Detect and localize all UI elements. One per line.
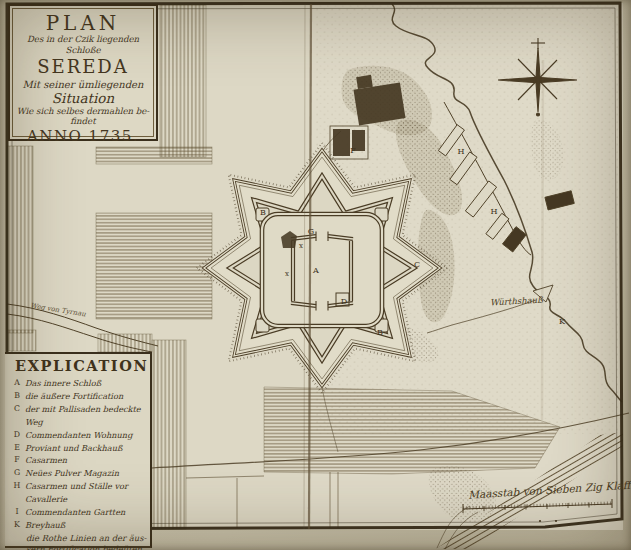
map-sheet: PLAN Des in der Czik liegenden Schloße S… [0, 0, 631, 550]
legend-note-line: die Rothe Linien an der äus- [26, 533, 147, 544]
legend-box: EXPLICATION ADas innere Schloß Bdie äuße… [5, 352, 152, 548]
map-year: ANNO 1735. [13, 128, 153, 145]
legend-item: DCommendanten Wohnung [13, 429, 147, 442]
legend-item: GNeües Pulver Magazin [13, 467, 147, 480]
legend-key-letter: I [13, 506, 21, 519]
legend-note-line: sern Fortification bedeüten die [26, 544, 147, 550]
map-subtitle-3: Situation [13, 91, 153, 106]
legend-key-letter: G [13, 467, 21, 480]
legend-heading: EXPLICATION [15, 357, 147, 374]
legend-item-text: Commendanten Gartten [25, 506, 125, 519]
legend-key-letter: K [13, 519, 21, 532]
legend-item-text: Neües Pulver Magazin [25, 467, 119, 480]
legend-key-letter: C [13, 403, 21, 429]
legend-item-text: Casarmen und Ställe vor Cavallerie [25, 480, 147, 506]
legend-item: Bdie äußere Fortification [13, 390, 147, 403]
legend-item: Cder mit Pallisaden bedeckte Weg [13, 403, 147, 429]
legend-key-letter: B [13, 390, 21, 403]
inner-castle [262, 214, 382, 326]
legend-key-letter: D [13, 429, 21, 442]
legend-key-letter: H [13, 480, 21, 506]
legend-item: FCasarmen [13, 454, 147, 467]
title-cartouche-inner-border: PLAN Des in der Czik liegenden Schloße S… [12, 8, 154, 137]
title-cartouche: PLAN Des in der Czik liegenden Schloße S… [8, 4, 158, 141]
map-subtitle-1: Des in der Czik liegenden Schloße [13, 34, 153, 56]
legend-key-letter: A [13, 377, 21, 390]
legend-key-letter: E [13, 442, 21, 455]
map-subtitle-5: findet [13, 116, 153, 126]
legend-item: EProviant und Backhauß [13, 442, 147, 455]
legend-item-text: Das innere Schloß [25, 377, 101, 390]
place-name: SEREDA [13, 56, 153, 78]
legend-item: ADas innere Schloß [13, 377, 147, 390]
legend-item: HCasarmen und Ställe vor Cavallerie [13, 480, 147, 506]
legend-item-text: Casarmen [25, 454, 67, 467]
legend-item: KBreyhauß [13, 519, 147, 532]
legend-item-text: die äußere Fortification [25, 390, 123, 403]
legend-item-text: Commendanten Wohnung [25, 429, 132, 442]
map-title: PLAN [13, 12, 153, 34]
legend-item-text: der mit Pallisaden bedeckte Weg [25, 403, 147, 429]
map-subtitle-4: Wie sich selbes dermahlen be- [13, 106, 153, 116]
legend-item-text: Proviant und Backhauß [25, 442, 122, 455]
star-fortress [197, 143, 447, 393]
legend-item: ICommendanten Gartten [13, 506, 147, 519]
legend-key-letter: F [13, 454, 21, 467]
legend-item-text: Breyhauß [25, 519, 65, 532]
